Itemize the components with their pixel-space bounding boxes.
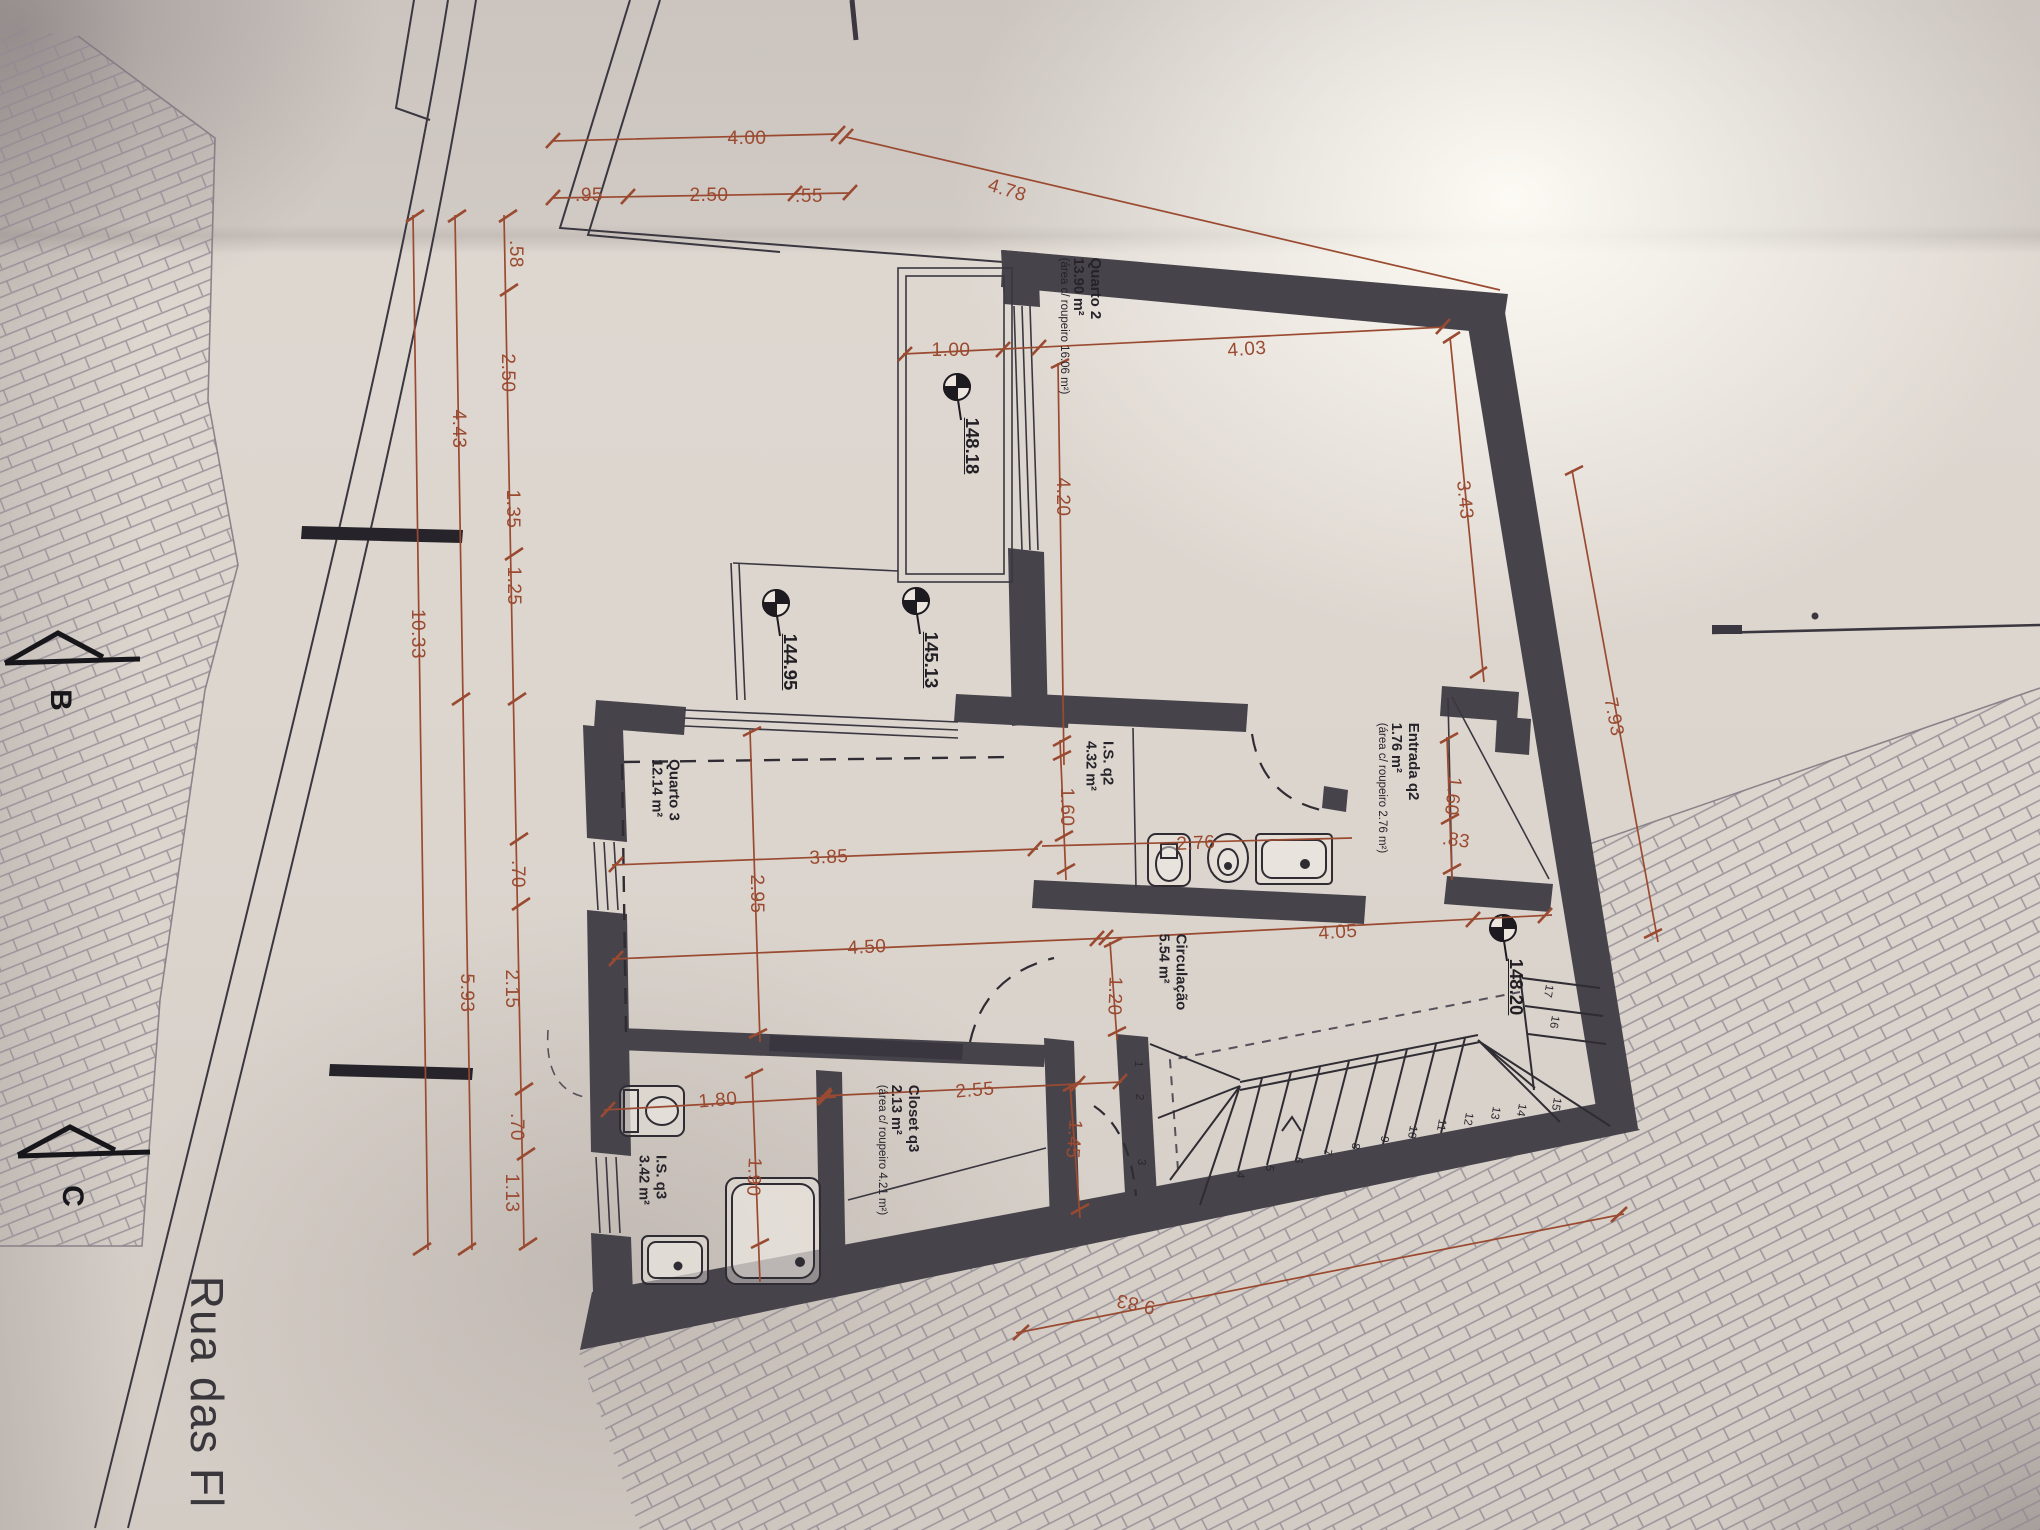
room-name: Quarto 3 <box>665 759 682 821</box>
dimension-label: 4.43 <box>447 410 469 449</box>
room-label-quarto-3: Quarto 3 12.14 m² <box>648 759 681 821</box>
room-note: (área c/ roupeiro 16.06 m²) <box>1057 258 1070 395</box>
dimension-label: .83 <box>1441 828 1472 854</box>
stair-tread-number: 17 <box>1541 984 1555 999</box>
room-label-is-q3: I.S. q3 3.42 m² <box>635 1155 668 1205</box>
level-label-145-13: 145.13 <box>920 632 942 689</box>
level-icon-148-20 <box>1490 915 1516 961</box>
room-label-entrada-q2: Entrada q2 1.76 m² (área c/ roupeiro 2.7… <box>1375 723 1421 853</box>
room-name: Closet q3 <box>904 1085 921 1215</box>
dimension-label: 4.00 <box>728 128 767 150</box>
dimension-label: 2.50 <box>496 354 518 393</box>
stair-tread-number: 11 <box>1434 1118 1448 1132</box>
stair-tread-number: 14 <box>1514 1103 1528 1118</box>
level-icon-144-95 <box>763 590 789 636</box>
stair-tread-number: 3 <box>1135 1158 1148 1166</box>
dimension-label: 10.33 <box>406 609 428 659</box>
site-hatch-left-strip <box>0 28 238 1246</box>
dimension-label: .70 <box>505 1113 527 1141</box>
room-note: (área c/ roupeiro 2.76 m²) <box>1375 723 1388 853</box>
room-note: (área c/ roupeiro 4.21 m²) <box>875 1085 888 1215</box>
dimension-label: 1.60 <box>1439 775 1465 816</box>
dimension-label: 3.43 <box>1451 479 1477 520</box>
dimension-label: 1.80 <box>698 1088 739 1113</box>
section-label-b: B <box>43 689 77 711</box>
dimension-label: .95 <box>575 185 603 207</box>
room-name: I.S. q2 <box>1099 741 1116 791</box>
dimension-label: 4.05 <box>1318 921 1358 946</box>
dimension-label: .58 <box>504 240 526 268</box>
plan-drawing <box>0 0 2040 1530</box>
room-name: Quarto 2 <box>1086 258 1103 395</box>
dimension-label: 1.90 <box>741 1157 765 1197</box>
room-area: 2.13 m² <box>888 1085 904 1215</box>
dimension-label: 2.95 <box>745 875 767 914</box>
stair-tread-number: 15 <box>1549 1097 1563 1112</box>
room-name: Entrada q2 <box>1404 723 1421 853</box>
dimension-label: .55 <box>795 186 823 208</box>
dimension-label: 1.00 <box>932 340 971 362</box>
room-area: 12.14 m² <box>648 759 664 821</box>
stair-tread-number: 10 <box>1405 1125 1419 1140</box>
level-icon-148-18 <box>944 374 970 420</box>
dimension-label: 2.50 <box>690 185 729 207</box>
stair-tread-number: 1 <box>1132 1060 1145 1068</box>
dimension-label: 1.45 <box>1060 1119 1085 1160</box>
dimension-label: 2.76 <box>1176 832 1216 856</box>
room-name: I.S. q3 <box>652 1155 669 1205</box>
dimension-label: 2.55 <box>955 1078 996 1103</box>
room-label-quarto-2: Quarto 2 13.90 m² (área c/ roupeiro 16.0… <box>1057 258 1103 395</box>
dimension-label: 4.03 <box>1227 338 1267 363</box>
dimension-label: 2.15 <box>500 970 522 1009</box>
room-label-circulacao: Circulação 5.54 m² <box>1155 934 1188 1011</box>
floor-plan-sheet: 4.00 .95 2.50 .55 4.78 .58 2.50 1.35 1.2… <box>0 0 2040 1530</box>
room-area: 3.42 m² <box>635 1155 651 1205</box>
dimension-label: 1.25 <box>502 567 524 606</box>
room-area: 5.54 m² <box>1155 934 1171 1011</box>
room-label-closet-q3: Closet q3 2.13 m² (área c/ roupeiro 4.21… <box>875 1085 921 1215</box>
dimension-label: 3.85 <box>809 846 849 870</box>
stair-tread-number: 12 <box>1461 1112 1475 1127</box>
stair-tread-number: 13 <box>1488 1106 1502 1121</box>
section-label-c: C <box>55 1185 89 1207</box>
room-area: 13.90 m² <box>1070 258 1086 395</box>
dimension-label: 5.93 <box>455 974 477 1013</box>
dimension-label: 1.13 <box>500 1174 522 1213</box>
dimension-label: 4.50 <box>847 936 887 960</box>
street-name-label: Rua das Fl <box>180 1276 234 1508</box>
level-label-144-95: 144.95 <box>779 634 801 691</box>
room-area: 1.76 m² <box>1388 723 1404 853</box>
stair-tread-number: 2 <box>1133 1093 1146 1101</box>
room-area: 4.32 m² <box>1082 741 1098 791</box>
stair-tread-number: 16 <box>1547 1015 1561 1030</box>
room-label-is-q2: I.S. q2 4.32 m² <box>1082 741 1115 791</box>
dimension-label: 1.60 <box>1055 788 1077 827</box>
dimension-label: .70 <box>506 860 528 888</box>
dimension-label: 1.35 <box>501 490 523 529</box>
dimension-label: 1.20 <box>1102 976 1125 1016</box>
level-icon-145-13 <box>903 588 929 634</box>
level-marker-icons <box>763 374 1516 961</box>
dimension-label: 4.20 <box>1051 478 1073 517</box>
room-name: Circulação <box>1172 934 1189 1011</box>
level-label-148-18: 148.18 <box>961 418 983 475</box>
level-label-148-20: 148.20 <box>1505 959 1527 1016</box>
